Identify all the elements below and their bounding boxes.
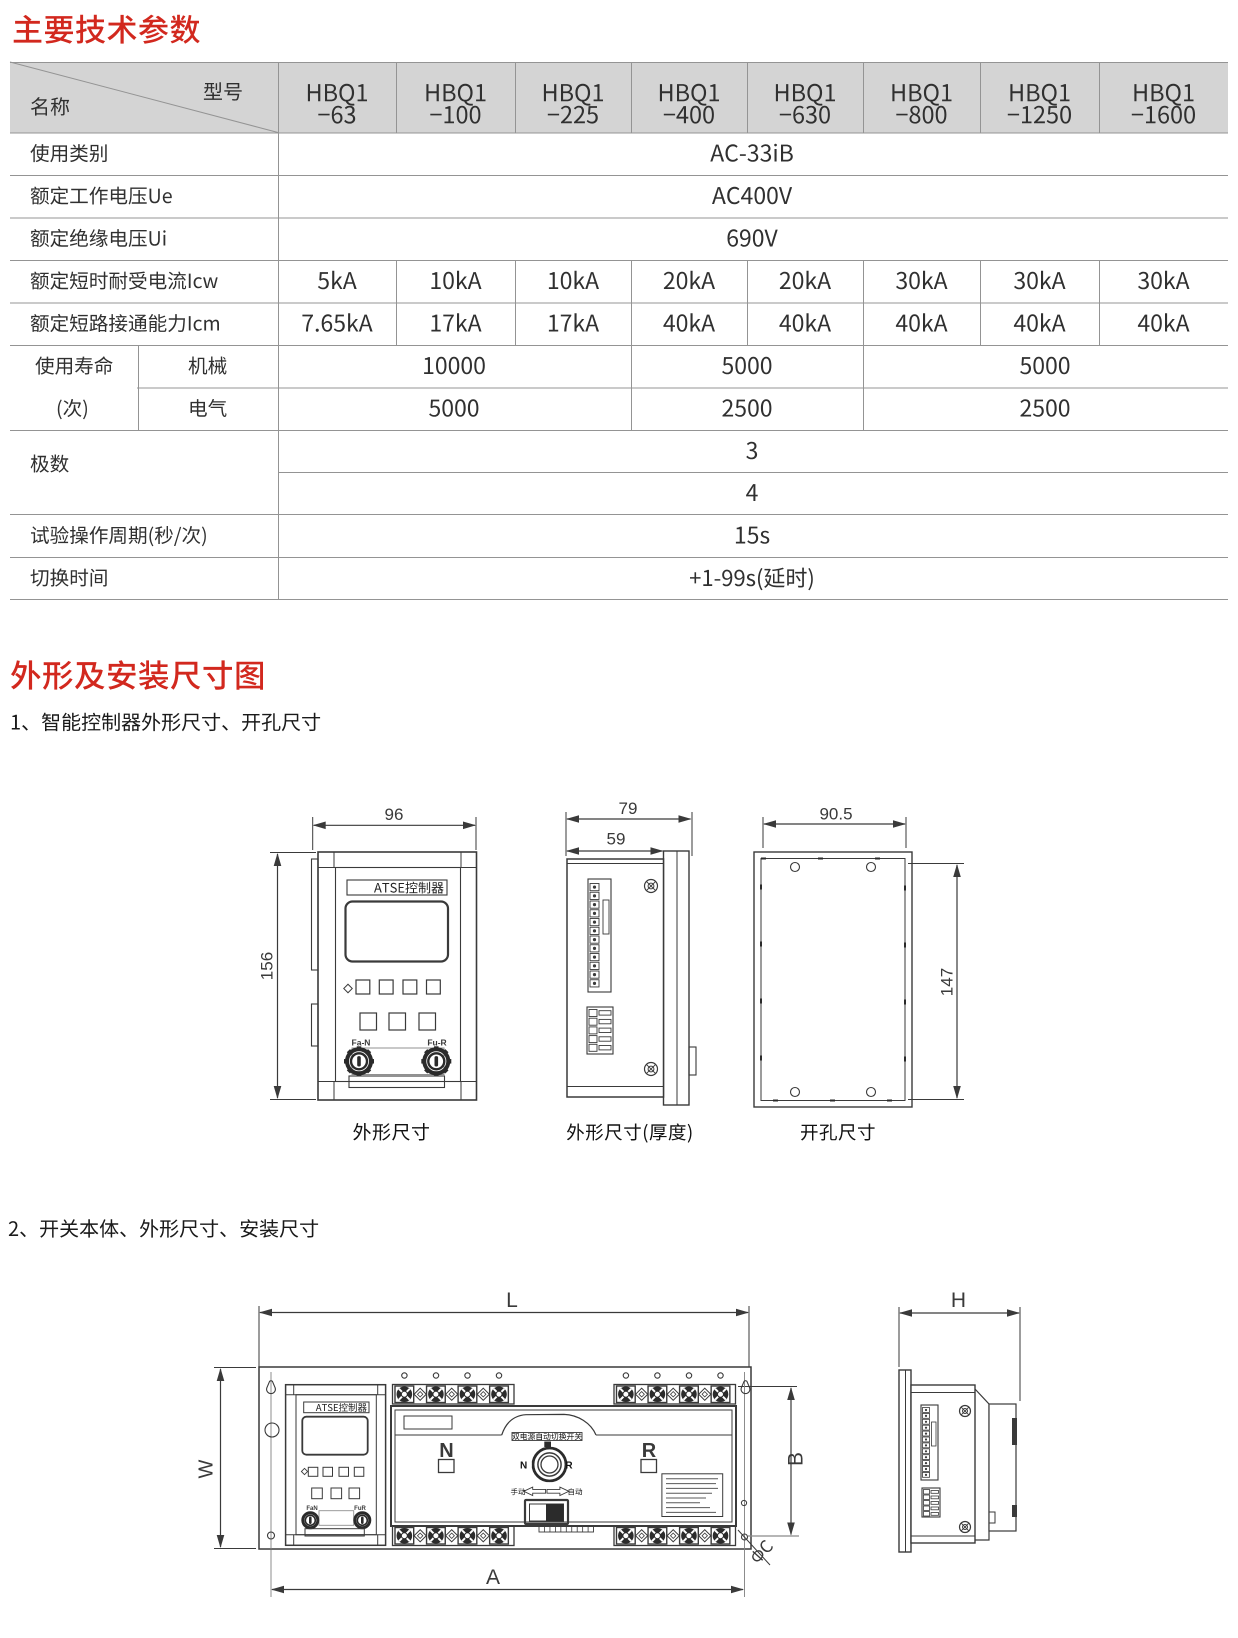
svg-text:96: 96 (385, 805, 404, 824)
svg-text:59: 59 (607, 830, 626, 849)
svg-text:FuR: FuR (354, 1506, 366, 1512)
svg-text:H: H (951, 1289, 966, 1312)
svg-text:N: N (520, 1461, 527, 1472)
svg-text:156: 156 (258, 952, 277, 980)
svg-text:R: R (642, 1440, 657, 1462)
svg-text:B: B (785, 1452, 808, 1466)
svg-text:FaN: FaN (306, 1506, 317, 1512)
svg-text:90.5: 90.5 (819, 805, 852, 824)
svg-text:A: A (486, 1566, 500, 1589)
svg-text:N: N (439, 1440, 453, 1462)
svg-text:79: 79 (619, 799, 638, 818)
svg-text:W: W (196, 1459, 218, 1478)
svg-text:R: R (565, 1461, 573, 1472)
svg-text:147: 147 (938, 968, 957, 996)
svg-text:L: L (506, 1289, 518, 1312)
svg-text:Fa-N: Fa-N (352, 1038, 371, 1048)
svg-text:Fu-R: Fu-R (427, 1038, 446, 1048)
